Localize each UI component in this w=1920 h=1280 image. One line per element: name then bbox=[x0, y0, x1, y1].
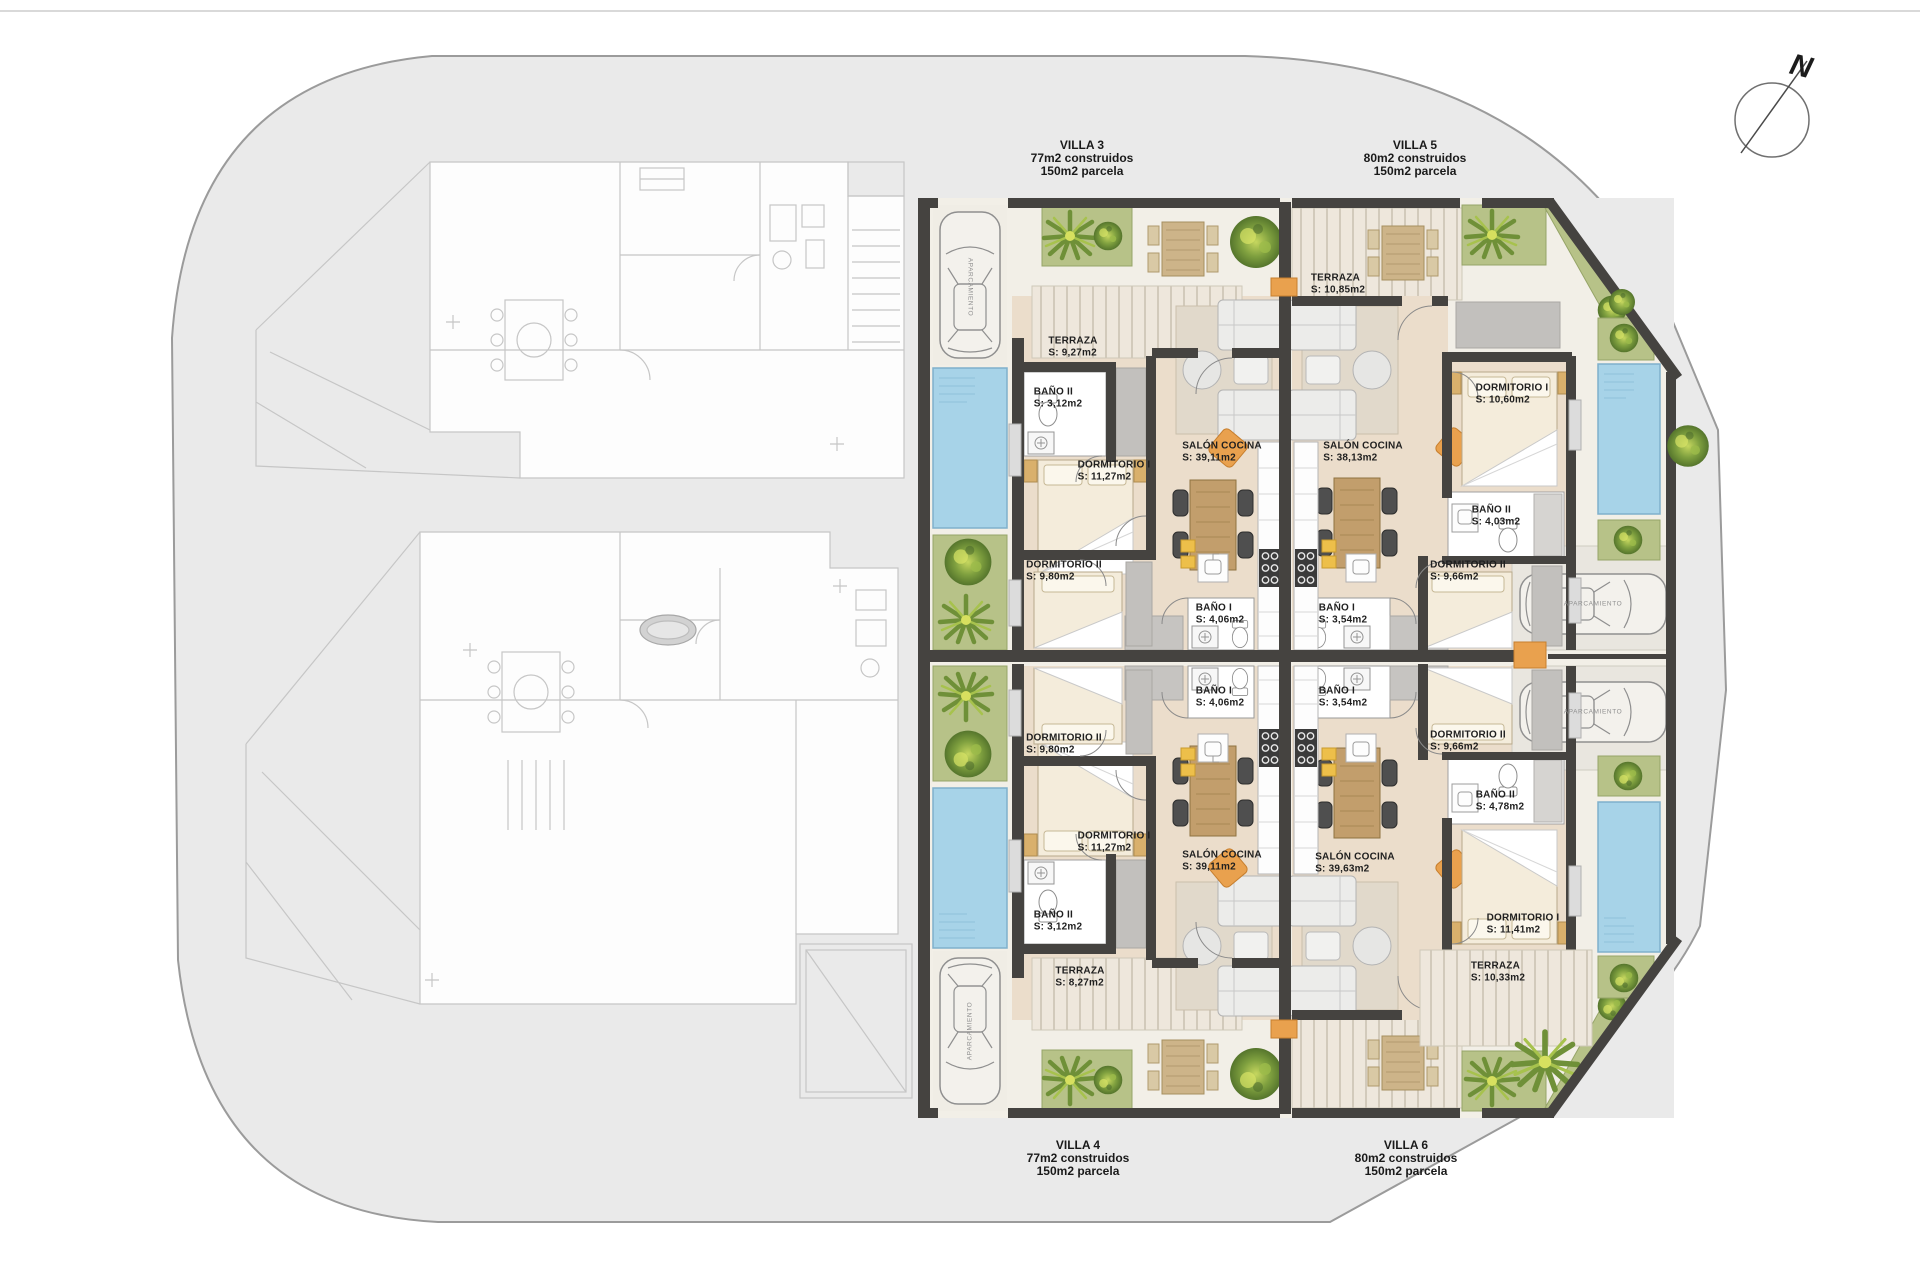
room-label-v3-salon: SALÓN COCINAS: 39,11m2 bbox=[1182, 441, 1262, 464]
room-label-v6-salon: SALÓN COCINAS: 39,63m2 bbox=[1315, 852, 1395, 875]
pool bbox=[933, 368, 1007, 528]
room-label-v4-bano1: BAÑO IS: 4,06m2 bbox=[1196, 686, 1245, 709]
room-label-v5-bano1: BAÑO IS: 3,54m2 bbox=[1319, 603, 1368, 626]
room-label-v6-dorm2: DORMITORIO IIS: 9,66m2 bbox=[1430, 730, 1506, 753]
room-label-v4-bano2: BAÑO IIS: 3,12m2 bbox=[1034, 910, 1083, 933]
villa-title-v5: VILLA 580m2 construidos150m2 parcela bbox=[1364, 139, 1467, 178]
room-label-v5-dorm2: DORMITORIO IIS: 9,66m2 bbox=[1430, 560, 1506, 583]
room-label-v5-dorm1: DORMITORIO IS: 10,60m2 bbox=[1476, 383, 1549, 406]
parking-label-v6: APARCAMIENTO bbox=[1564, 709, 1623, 716]
room-label-v4-dorm2: DORMITORIO IIS: 9,80m2 bbox=[1026, 733, 1102, 756]
room-label-v6-bano2: BAÑO IIS: 4,78m2 bbox=[1476, 790, 1525, 813]
room-label-v6-terraza: TERRAZAS: 10,33m2 bbox=[1471, 961, 1525, 984]
pool bbox=[1598, 364, 1660, 514]
room-label-v5-bano2: BAÑO IIS: 4,03m2 bbox=[1472, 505, 1521, 528]
villa-title-v6: VILLA 680m2 construidos150m2 parcela bbox=[1355, 1139, 1458, 1178]
villa-title-v3: VILLA 377m2 construidos150m2 parcela bbox=[1031, 139, 1134, 178]
room-label-v3-dorm2: DORMITORIO IIS: 9,80m2 bbox=[1026, 560, 1102, 583]
room-label-v3-bano2: BAÑO IIS: 3,12m2 bbox=[1034, 387, 1083, 410]
room-label-v5-terraza: TERRAZAS: 10,85m2 bbox=[1311, 273, 1365, 296]
parking-label-v3: APARCAMIENTO bbox=[967, 258, 974, 317]
parking-label-v5: APARCAMIENTO bbox=[1564, 601, 1623, 608]
room-label-v3-dorm1: DORMITORIO IS: 11,27m2 bbox=[1078, 460, 1151, 483]
room-label-v6-dorm1: DORMITORIO IS: 11,41m2 bbox=[1487, 913, 1560, 936]
floor-plan-page: N VILLA 377m2 construidos150m2 parcela V… bbox=[0, 0, 1920, 1280]
room-label-v4-salon: SALÓN COCINAS: 39,11m2 bbox=[1182, 850, 1262, 873]
room-label-v3-bano1: BAÑO IS: 4,06m2 bbox=[1196, 603, 1245, 626]
villa-title-v4: VILLA 477m2 construidos150m2 parcela bbox=[1027, 1139, 1130, 1178]
parking-label-v4: APARCAMIENTO bbox=[967, 1002, 974, 1061]
site-plan-graphic bbox=[0, 0, 1920, 1280]
room-label-v3-terraza: TERRAZAS: 9,27m2 bbox=[1048, 336, 1097, 359]
room-label-v5-salon: SALÓN COCINAS: 38,13m2 bbox=[1323, 441, 1403, 464]
room-label-v6-bano1: BAÑO IS: 3,54m2 bbox=[1319, 686, 1368, 709]
room-label-v4-terraza: TERRAZAS: 8,27m2 bbox=[1055, 966, 1104, 989]
room-label-v4-dorm1: DORMITORIO IS: 11,27m2 bbox=[1078, 831, 1151, 854]
